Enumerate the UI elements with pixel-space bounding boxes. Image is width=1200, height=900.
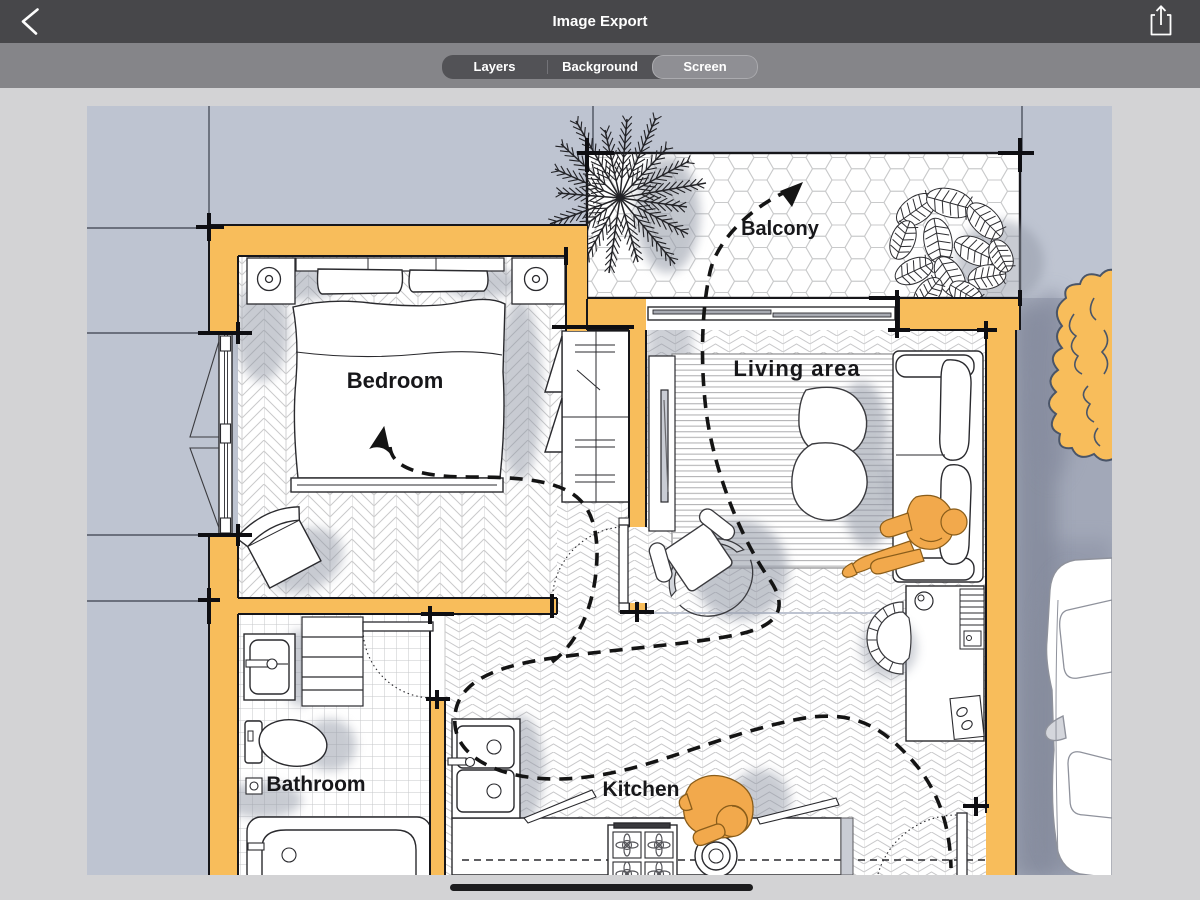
svg-text:Balcony: Balcony	[741, 218, 820, 240]
svg-text:Living area: Living area	[733, 356, 860, 381]
svg-text:Kitchen: Kitchen	[602, 778, 679, 801]
svg-text:Bedroom: Bedroom	[347, 368, 444, 393]
svg-text:Bathroom: Bathroom	[266, 773, 365, 796]
